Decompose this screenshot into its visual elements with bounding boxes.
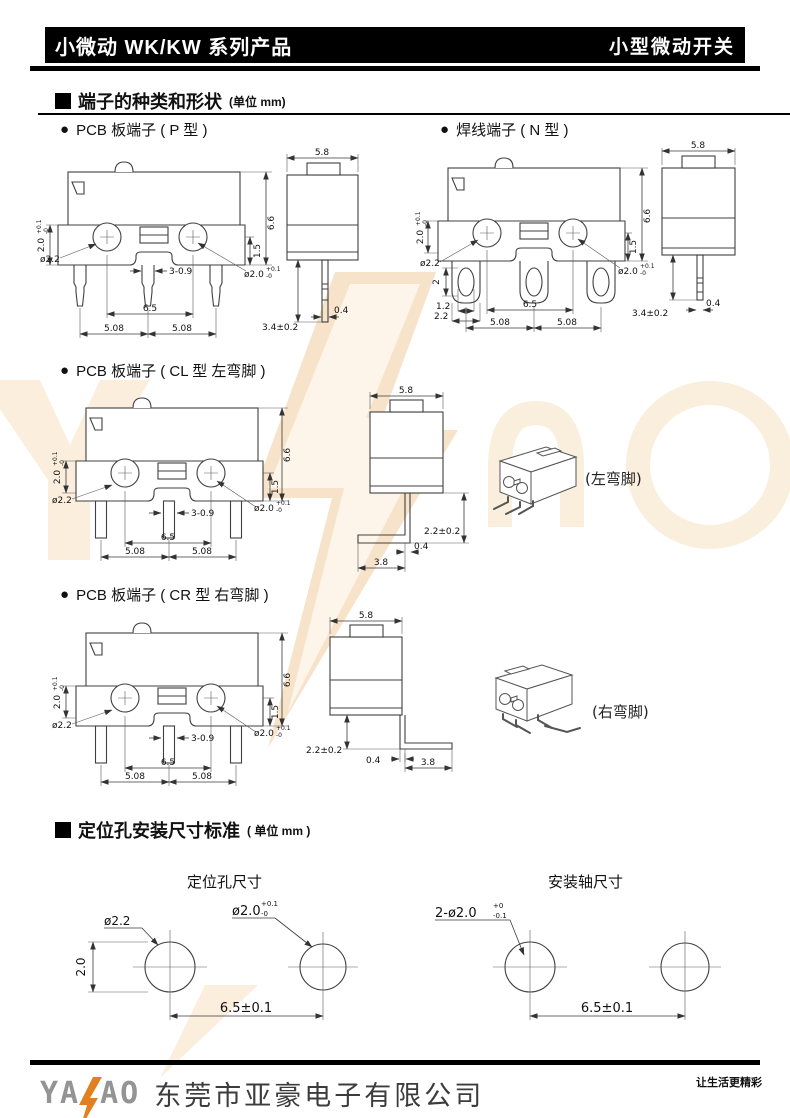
sketch-foot — [545, 726, 580, 732]
dim-v: 2.0 — [74, 957, 88, 976]
cr-type-label: PCB 板端子 ( CR 型 右弯脚 ) — [76, 584, 269, 605]
solder-tab — [587, 261, 615, 303]
header-bar: 小微动 WK/KW 系列产品 小型微动开关 — [45, 27, 745, 63]
pin — [96, 726, 107, 763]
bullet-icon: ● — [60, 587, 69, 602]
bullet-icon: ● — [440, 122, 449, 137]
cl-type-label-row: ● PCB 板端子 ( CL 型 左弯脚 ) — [60, 360, 266, 381]
section2-title: 定位孔安装尺寸标准 — [78, 817, 240, 843]
dim-dia2-tol-top: +0.1 — [261, 900, 278, 908]
dim-pin-width: 0.4 — [366, 756, 381, 766]
pin — [142, 265, 154, 306]
dim-edge: 1.5 — [253, 244, 263, 258]
dim-width58: 5.8 — [359, 611, 374, 621]
dim-pitch508a: 5.08 — [104, 324, 124, 334]
sketch-leg — [494, 497, 508, 509]
company-name: 东莞市亚豪电子有限公司 — [154, 1074, 484, 1113]
dim-dia20-tol-top: +0.1 — [276, 725, 291, 732]
cr-note: (右弯脚) — [592, 703, 649, 721]
dim-dia20-tol-bot: -0 — [266, 273, 272, 280]
dim-hole-v-tol-bot: -0 — [422, 220, 429, 226]
dim-hole-v-tol-bot: -0 — [43, 228, 50, 234]
side-body — [330, 637, 402, 715]
bullet-icon: ● — [60, 122, 69, 137]
dim-pitch65: 6.5 — [143, 304, 157, 314]
dim-pitch: 6.5±0.1 — [581, 1001, 633, 1016]
dim-pitch508a: 5.08 — [490, 318, 510, 328]
dim-hole-v-tol-top: +0.1 — [36, 219, 43, 234]
dim-height: 6.6 — [283, 448, 293, 463]
sketch-leg — [516, 720, 530, 733]
cl-type-label: PCB 板端子 ( CL 型 左弯脚 ) — [76, 360, 265, 381]
sketch-hole — [504, 477, 515, 488]
dim-pin-width: 0.4 — [334, 306, 349, 316]
side-body — [370, 412, 443, 493]
sketch-hole — [517, 483, 528, 494]
dim-hole-v: 2.0 — [53, 695, 63, 710]
dim-width58: 5.8 — [315, 148, 330, 158]
dim-hole-v-tol-top: +0.1 — [52, 451, 59, 466]
footer-slogan: 让生活更精彩 — [696, 1074, 762, 1090]
dim-pitch65: 6.5 — [161, 758, 175, 768]
dim-eyelet-h: 2 — [432, 279, 442, 285]
dim-drop: 2.2±0.2 — [306, 746, 342, 756]
pin — [231, 726, 242, 763]
side-button — [390, 400, 423, 412]
tab-eyelet — [526, 268, 542, 296]
locating-hole-diagram: 定位孔尺寸 ø2.2 ø2.0 +0.1 -0 2.0 6.5±0.1 — [60, 865, 410, 1040]
cl-note: (左弯脚) — [585, 470, 642, 488]
dim-width58: 5.8 — [691, 141, 706, 151]
dim-dia20-tol-bot: -0 — [276, 507, 282, 514]
dim-dia20: ø2.0 — [244, 270, 264, 280]
datasheet-page: 小微动 WK/KW 系列产品 小型微动开关 端子的种类和形状 (单位 mm) ●… — [0, 0, 790, 1118]
dim-dia20: ø2.0 — [254, 504, 274, 514]
cr-type-drawing: 6.6 1.5 2.0 +0.1 -0 ø2.2 3-0.9 ø2.0 +0.1… — [40, 610, 750, 808]
dim-tab-w: 2.2 — [434, 312, 448, 322]
pin — [96, 501, 107, 538]
tab-eyelet — [458, 268, 474, 296]
p-type-drawing: 6.6 1.5 2.0 +0.1 -0 ø2.2 3-0.9 ø2.0 +0.1… — [40, 140, 400, 352]
cl-type-drawing: 6.6 1.5 2.0 +0.1 -0 ø2.2 3-0.9 ø2.0 +0.1… — [40, 385, 750, 580]
black-square-icon — [55, 93, 71, 109]
n-type-label: 焊线端子 ( N 型 ) — [456, 119, 569, 140]
dim-height: 6.6 — [267, 216, 277, 231]
dim-pitch508b: 5.08 — [192, 547, 212, 557]
dim-eyelet-w: 1.2 — [436, 302, 450, 312]
dim-edge: 1.5 — [271, 480, 281, 494]
dim-pin-length: 3.4±0.2 — [632, 309, 668, 319]
n-type-label-row: ● 焊线端子 ( N 型 ) — [440, 119, 569, 140]
dim-pin-width: 0.4 — [706, 299, 721, 309]
dim-pitch: 6.5±0.1 — [220, 1001, 272, 1016]
dim-pitch508a: 5.08 — [125, 772, 145, 782]
dim-dia22: ø2.2 — [40, 255, 60, 265]
dim-pitch508b: 5.08 — [557, 318, 577, 328]
dim-slot: 3-0.9 — [169, 267, 193, 277]
sketch-hole — [500, 694, 511, 705]
solder-tab — [452, 261, 480, 303]
dim-dia20: ø2.0 — [254, 729, 274, 739]
logo-text-ao: AO — [100, 1076, 140, 1111]
shaft-diagram-title: 安装轴尺寸 — [548, 873, 623, 891]
dim-dia-tol-top: +0 — [493, 902, 503, 910]
dim-bend: 3.8 — [374, 558, 389, 568]
dim-dia20-tol-bot: -0 — [276, 732, 282, 739]
dim-dia20: ø2.0 — [618, 267, 638, 277]
bullet-icon: ● — [60, 363, 69, 378]
dim-height: 6.6 — [283, 673, 293, 688]
pin — [231, 501, 242, 538]
black-square-icon — [55, 822, 71, 838]
dim-pitch65: 6.5 — [161, 533, 175, 543]
pin — [74, 265, 86, 306]
cr-type-label-row: ● PCB 板端子 ( CR 型 右弯脚 ) — [60, 584, 269, 605]
dim-drop: 2.2±0.2 — [424, 527, 460, 537]
footer-rule — [30, 1060, 760, 1065]
dim-hole-v-tol-top: +0.1 — [52, 676, 59, 691]
side-button — [350, 625, 383, 637]
dim-dia2-tol-bot: -0 — [261, 910, 268, 918]
dim-dia22: ø2.2 — [52, 496, 72, 506]
section1-title-row: 端子的种类和形状 (单位 mm) — [55, 88, 286, 114]
section1-unit: (单位 mm) — [229, 93, 286, 110]
sketch-leg — [506, 502, 520, 514]
dim-pitch508b: 5.08 — [172, 324, 192, 334]
tab-eyelet — [593, 268, 609, 296]
dim-dia20-tol-bot: -0 — [640, 270, 646, 277]
header-left-title: 小微动 WK/KW 系列产品 — [55, 31, 292, 60]
header-rule — [30, 66, 760, 71]
dim-dia20-tol-top: +0.1 — [266, 266, 281, 273]
dim-dia20-tol-top: +0.1 — [276, 500, 291, 507]
lightning-bolt-icon — [78, 1077, 102, 1118]
bent-pin-left — [358, 493, 410, 543]
dim-bend: 3.8 — [421, 758, 436, 768]
dim-pitch65: 6.5 — [523, 300, 537, 310]
dim-hole-v-tol-top: +0.1 — [415, 211, 422, 226]
dim-hole-v: 2.0 — [416, 230, 426, 245]
dim-dia22: ø2.2 — [52, 721, 72, 731]
dim-pin-length: 3.4±0.2 — [262, 323, 298, 333]
solder-tab — [520, 261, 548, 303]
p-type-label-row: ● PCB 板端子 ( P 型 ) — [60, 119, 207, 140]
dim-hole-v-tol-bot: -0 — [59, 460, 66, 466]
n-type-drawing: 6.6 1.5 2.0 +0.1 -0 ø2.2 2 1.2 2.2 6.5 5… — [420, 140, 788, 352]
footer-logo-row: YA AO 东莞市亚豪电子有限公司 — [40, 1071, 484, 1115]
dim-height: 6.6 — [643, 209, 653, 224]
section1-rule — [38, 113, 790, 115]
bent-pin-right — [400, 715, 452, 749]
side-button — [307, 163, 340, 175]
logo-text-ya: YA — [40, 1076, 80, 1111]
dim-dia: 2-ø2.0 — [435, 906, 477, 921]
mounting-shaft-diagram: 安装轴尺寸 2-ø2.0 +0 -0.1 6.5±0.1 — [430, 865, 770, 1040]
dim-edge: 1.5 — [629, 240, 639, 254]
dim-pitch508b: 5.08 — [192, 772, 212, 782]
dim-dia2: ø2.0 — [232, 904, 261, 919]
side-body — [287, 175, 358, 260]
dim-hole-v-tol-bot: -0 — [59, 685, 66, 691]
section1-title: 端子的种类和形状 — [78, 88, 222, 114]
dim-edge: 1.5 — [271, 705, 281, 719]
p-type-label: PCB 板端子 ( P 型 ) — [76, 119, 207, 140]
section2-title-row: 定位孔安装尺寸标准 ( 单位 mm ) — [55, 817, 310, 843]
pin — [210, 265, 222, 306]
dim-pitch508a: 5.08 — [125, 547, 145, 557]
dim-dia-tol-bot: -0.1 — [493, 912, 507, 920]
side-pin — [322, 260, 328, 322]
header-right-title: 小型微动开关 — [609, 32, 735, 59]
dim-pin-width: 0.4 — [414, 542, 429, 552]
dim-dia20-tol-top: +0.1 — [640, 263, 655, 270]
hole-diagram-title: 定位孔尺寸 — [187, 873, 262, 891]
dim-dia1: ø2.2 — [104, 914, 130, 928]
dim-hole-v: 2.0 — [37, 238, 47, 253]
dim-width58: 5.8 — [399, 386, 414, 396]
dim-hole-v: 2.0 — [53, 470, 63, 485]
side-button — [682, 156, 715, 168]
section2-unit: ( 单位 mm ) — [247, 822, 310, 839]
dim-dia22: ø2.2 — [420, 259, 440, 269]
side-body — [662, 168, 735, 255]
